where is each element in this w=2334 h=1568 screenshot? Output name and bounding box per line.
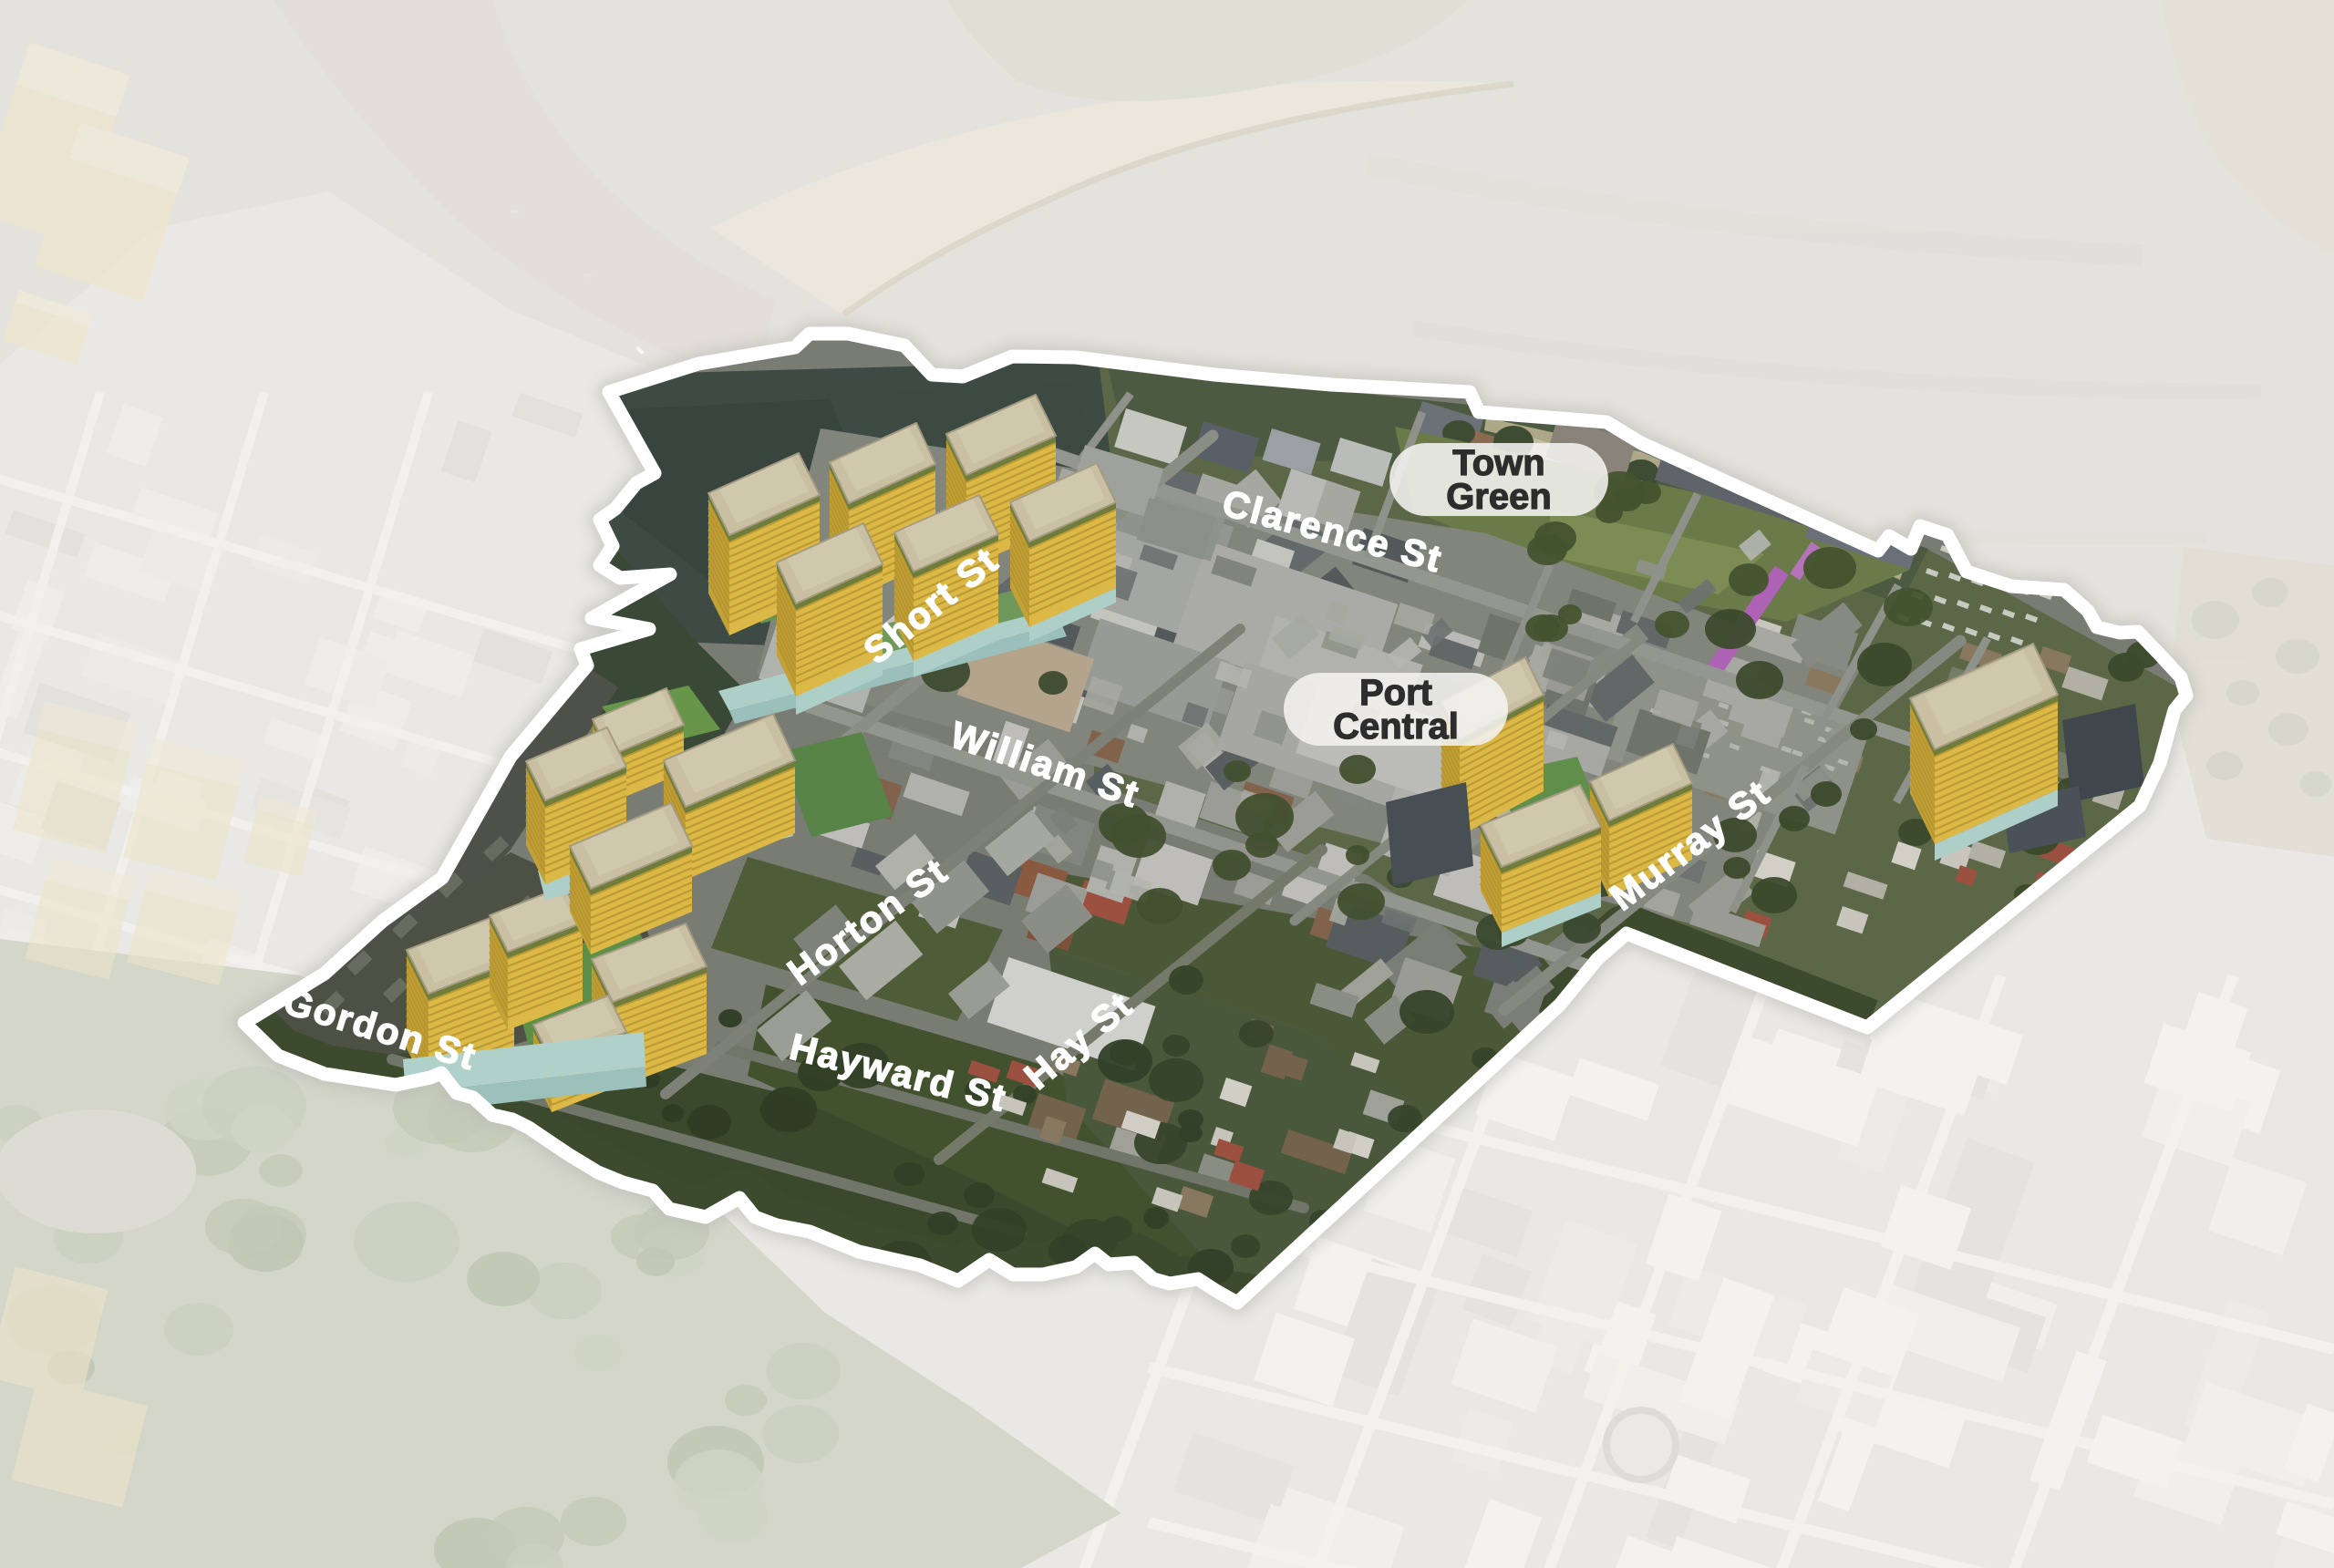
svg-text:Central: Central [1333,707,1459,747]
svg-text:Green: Green [1446,477,1552,517]
